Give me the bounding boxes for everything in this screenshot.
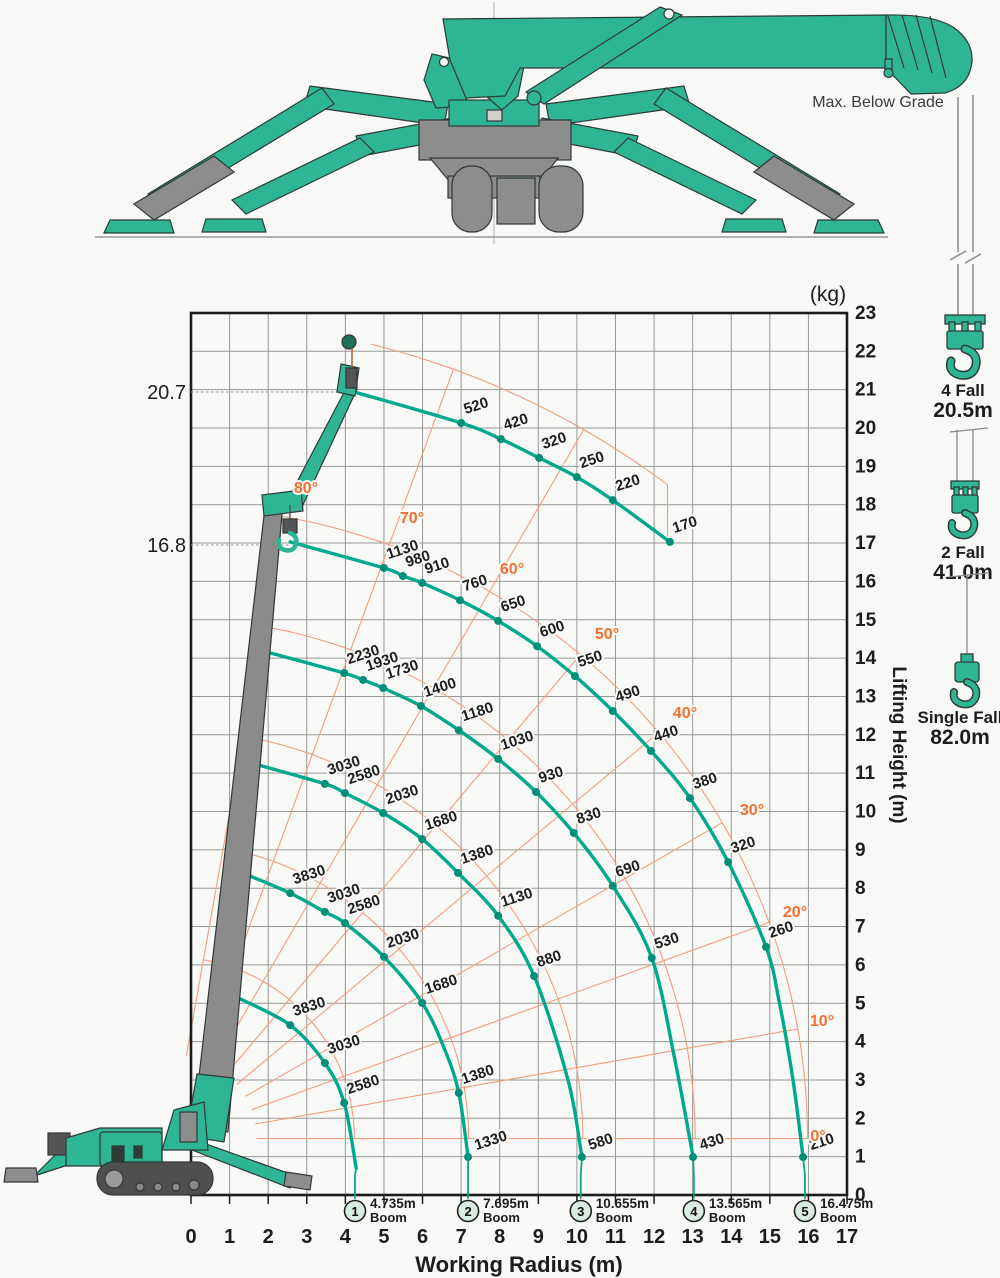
- load-label: 2030: [384, 925, 421, 951]
- load-label: 320: [729, 833, 758, 857]
- boom-word-label: Boom: [596, 1210, 633, 1225]
- x-tick-label: 13: [682, 1226, 704, 1248]
- data-point: [799, 1153, 807, 1161]
- load-label: 2580: [345, 1071, 382, 1097]
- y-tick-label: 21: [855, 380, 877, 401]
- y-tick-label: 20: [855, 418, 876, 439]
- y-tick-label: 10: [855, 802, 876, 823]
- load-label: 430: [697, 1130, 726, 1154]
- load-label: 320: [540, 429, 569, 453]
- data-point: [399, 572, 407, 580]
- load-label: 690: [613, 857, 642, 881]
- boom-length-label: 10.655m: [596, 1196, 649, 1211]
- y-tick-label: 3: [855, 1070, 866, 1091]
- data-point: [321, 908, 329, 916]
- height-marker-value: 16.8: [147, 535, 186, 557]
- data-point: [609, 707, 617, 715]
- hook-single-fall-length: 82.0m: [930, 726, 990, 749]
- angle-label: 80°: [294, 480, 318, 497]
- data-point: [570, 829, 578, 837]
- load-value-labels: 5204203202502201701130980910760650600550…: [291, 394, 837, 1154]
- data-point: [647, 747, 655, 755]
- x-tick-label: 8: [494, 1226, 505, 1248]
- x-tick-label: 14: [720, 1226, 743, 1248]
- data-point: [724, 858, 732, 866]
- load-label: 420: [501, 410, 530, 434]
- x-tick-label: 17: [836, 1226, 858, 1248]
- data-point: [494, 617, 502, 625]
- hook-fall-annotations: 4 Fall 20.5m 2 Fall 41.0m: [917, 95, 1000, 749]
- y-tick-label: 17: [855, 533, 876, 554]
- data-point: [578, 1153, 586, 1161]
- data-point: [340, 1099, 348, 1107]
- y-tick-label: 15: [855, 610, 877, 631]
- boom-word-label: Boom: [483, 1210, 520, 1225]
- load-label: 880: [535, 947, 564, 971]
- angle-label: 20°: [783, 904, 807, 921]
- y-tick-label: 5: [855, 993, 866, 1014]
- load-label: 1680: [423, 971, 460, 997]
- stowed-crane: [4, 1102, 312, 1195]
- angle-label: 0°: [810, 1128, 825, 1145]
- x-tick-label: 9: [533, 1226, 544, 1248]
- y-tick-label: 19: [855, 456, 876, 477]
- data-point: [286, 889, 294, 897]
- data-point: [418, 835, 426, 843]
- height-marker-value: 20.7: [147, 382, 186, 404]
- load-label: 580: [586, 1130, 615, 1154]
- x-tick-label: 0: [185, 1226, 196, 1248]
- main-boom: [443, 7, 972, 105]
- y-axis-labels: 01234567891011121314151617181920212223: [855, 303, 877, 1206]
- data-point: [686, 794, 694, 802]
- data-point: [689, 1153, 697, 1161]
- load-label: 550: [575, 647, 604, 671]
- data-point: [456, 596, 464, 604]
- hook-single-fall: Single Fall 82.0m: [917, 573, 1000, 749]
- y-tick-label: 14: [855, 648, 877, 669]
- y-tick-label: 23: [855, 303, 876, 324]
- boom-marker-number: 5: [801, 1204, 808, 1219]
- unit-label: (kg): [810, 283, 846, 306]
- curve-boom3: [252, 763, 582, 1157]
- load-chart-labels: 5204203202502201701130980910760650600550…: [147, 283, 909, 1277]
- y-tick-label: 11: [855, 763, 876, 784]
- x-tick-label: 1: [224, 1226, 235, 1248]
- hook-2-fall: 2 Fall 41.0m: [933, 428, 993, 584]
- y-tick-label: 4: [855, 1032, 866, 1053]
- data-point: [530, 972, 538, 980]
- load-label: 1180: [459, 699, 495, 725]
- data-point: [762, 943, 770, 951]
- x-tick-label: 4: [340, 1226, 352, 1248]
- load-label: 530: [652, 929, 681, 953]
- load-label: 490: [613, 682, 642, 706]
- data-point: [464, 1153, 472, 1161]
- data-point: [666, 538, 674, 546]
- data-point: [533, 642, 541, 650]
- data-point: [380, 564, 388, 572]
- x-tick-label: 11: [605, 1226, 626, 1248]
- y-tick-label: 13: [855, 686, 876, 707]
- data-point: [418, 999, 426, 1007]
- load-label: 1030: [499, 727, 536, 753]
- load-label: 3830: [291, 994, 328, 1020]
- boom-length-label: 16.475m: [820, 1196, 873, 1211]
- hook-2fall-label: 2 Fall: [941, 543, 984, 562]
- data-point: [455, 726, 463, 734]
- y-tick-label: 2: [855, 1108, 866, 1129]
- load-label: 2030: [384, 782, 421, 808]
- max-below-grade-label: Max. Below Grade: [812, 94, 944, 111]
- angle-labels: 0°10°20°30°40°50°60°70°80°: [294, 480, 834, 1145]
- curve-boom1: [238, 998, 356, 1168]
- data-point: [417, 702, 425, 710]
- load-label: 250: [577, 448, 606, 472]
- y-tick-label: 9: [855, 840, 866, 861]
- load-label: 600: [538, 617, 567, 641]
- boom-word-label: Boom: [820, 1210, 857, 1225]
- data-point: [609, 496, 617, 504]
- angle-label: 50°: [595, 626, 619, 643]
- hook-4fall-length: 20.5m: [933, 399, 993, 422]
- plot-border: [191, 313, 847, 1195]
- data-point: [340, 669, 348, 677]
- load-label: 760: [460, 571, 489, 595]
- load-label: 440: [651, 722, 680, 746]
- data-point: [380, 953, 388, 961]
- load-label: 1330: [472, 1127, 509, 1153]
- y-tick-label: 6: [855, 955, 866, 976]
- crane-side-view-illustration: [4, 335, 359, 1195]
- boom-markers: 14.735mBoom27.695mBoom310.655mBoom413.56…: [345, 1196, 874, 1225]
- y-tick-label: 12: [855, 725, 876, 746]
- x-tick-label: 6: [417, 1226, 428, 1248]
- x-tick-label: 3: [301, 1226, 312, 1248]
- curve-tail-boom4: [693, 1157, 694, 1199]
- load-label: 520: [462, 394, 491, 418]
- data-point: [341, 789, 349, 797]
- curve-tail-boom5: [803, 1157, 805, 1199]
- grid: [191, 313, 847, 1195]
- boom-marker-number: 2: [464, 1204, 471, 1219]
- angle-label: 10°: [810, 1013, 834, 1030]
- y-tick-label: 18: [855, 495, 876, 516]
- data-point: [494, 755, 502, 763]
- load-label: 830: [574, 804, 603, 828]
- load-label: 260: [766, 918, 795, 942]
- x-tick-label: 16: [797, 1226, 819, 1248]
- data-point: [648, 954, 656, 962]
- y-tick-label: 22: [855, 341, 876, 362]
- x-tick-label: 5: [378, 1226, 389, 1248]
- x-axis-labels: 01234567891011121314151617: [185, 1226, 858, 1248]
- load-label: 1380: [459, 841, 496, 867]
- data-point: [457, 419, 465, 427]
- y-tick-label: 16: [855, 571, 876, 592]
- boom-length-label: 13.565m: [709, 1196, 762, 1211]
- hook-2fall-length: 41.0m: [933, 561, 993, 584]
- load-label: 1380: [459, 1061, 496, 1087]
- boom-base-section: [193, 503, 283, 1132]
- data-point: [494, 912, 502, 920]
- boom-word-label: Boom: [709, 1210, 746, 1225]
- crane-load-chart-page: 4 Fall 20.5m 2 Fall 41.0m: [0, 0, 1000, 1278]
- angle-label: 70°: [400, 510, 424, 527]
- load-label: 1400: [421, 675, 458, 701]
- data-point: [286, 1021, 294, 1029]
- data-point: [454, 869, 462, 877]
- x-tick-label: 2: [263, 1226, 274, 1248]
- data-point: [571, 672, 579, 680]
- load-label: 3030: [325, 1032, 362, 1058]
- y-tick-label: 1: [855, 1147, 866, 1168]
- load-label: 930: [536, 763, 565, 787]
- curve-tail-boom3: [581, 1157, 582, 1199]
- x-tick-label: 10: [566, 1226, 588, 1248]
- data-point: [455, 1089, 463, 1097]
- x-tick-label: 12: [643, 1226, 665, 1248]
- angle-label: 60°: [500, 561, 524, 578]
- load-label: 220: [613, 471, 642, 495]
- data-point: [359, 676, 367, 684]
- boom-marker-number: 3: [577, 1204, 584, 1219]
- angle-line-50: [226, 655, 580, 1074]
- boom-length-label: 7.695m: [483, 1196, 529, 1211]
- data-point: [321, 780, 329, 788]
- scene-canvas: 4 Fall 20.5m 2 Fall 41.0m: [0, 0, 1000, 1278]
- data-point: [573, 473, 581, 481]
- load-label: 170: [670, 513, 699, 537]
- boom-marker-number: 1: [351, 1204, 358, 1219]
- x-axis-title: Working Radius (m): [415, 1252, 622, 1277]
- load-chart-plot: [186, 313, 847, 1204]
- angle-label: 40°: [673, 705, 697, 722]
- angle-label: 30°: [740, 802, 764, 819]
- data-point: [609, 882, 617, 890]
- data-point: [379, 684, 387, 692]
- data-point: [341, 919, 349, 927]
- hook-4fall-label: 4 Fall: [941, 381, 984, 400]
- y-tick-label: 8: [855, 878, 866, 899]
- hook-4-fall: 4 Fall 20.5m: [933, 95, 993, 422]
- data-point: [418, 579, 426, 587]
- carrier-body: [419, 120, 583, 232]
- boom-word-label: Boom: [370, 1210, 407, 1225]
- boom-length-label: 4.735m: [370, 1196, 416, 1211]
- data-point: [535, 454, 543, 462]
- boom-marker-number: 4: [690, 1204, 698, 1219]
- y-axis-title: Lifting Height (m): [888, 666, 909, 823]
- y-tick-label: 7: [855, 917, 866, 938]
- data-point: [532, 788, 540, 796]
- x-tick-label: 15: [759, 1226, 781, 1248]
- crane-rear-view-illustration: [95, 2, 972, 244]
- hook-single-fall-label: Single Fall: [917, 708, 1000, 727]
- x-tick-label: 7: [456, 1226, 467, 1248]
- data-point: [321, 1059, 329, 1067]
- data-point: [379, 809, 387, 817]
- data-point: [497, 435, 505, 443]
